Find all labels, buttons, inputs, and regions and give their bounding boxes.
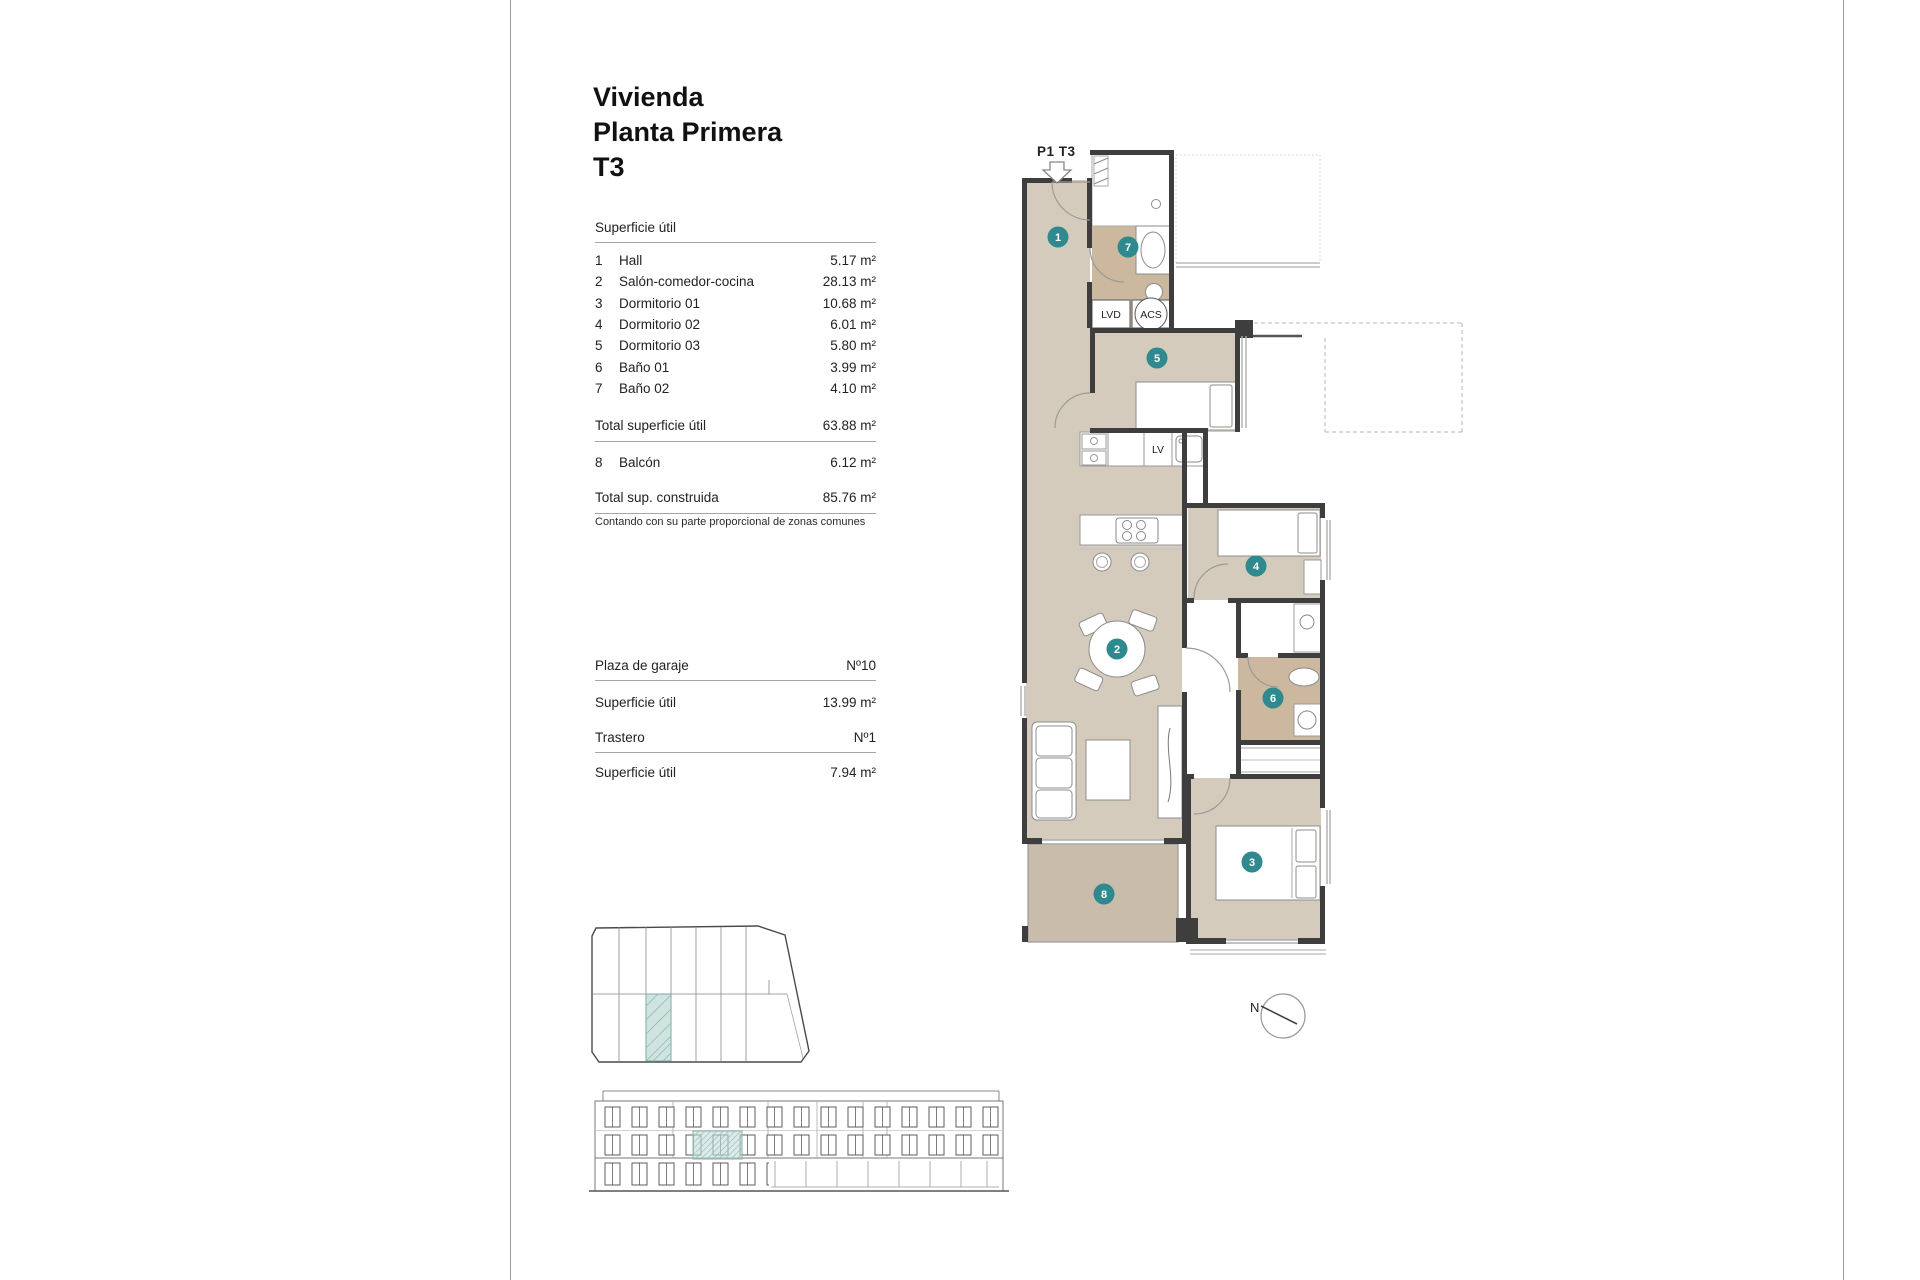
room-badge: 7	[1125, 242, 1131, 254]
table-row: 3Dormitorio 0110.68 m²	[595, 293, 876, 314]
total-util-row: Total superficie útil63.88 m²	[595, 418, 876, 442]
page-title: Vivienda Planta Primera T3	[593, 80, 782, 185]
surface-table-header: Superficie útil	[595, 220, 876, 243]
table-row: 1Hall5.17 m²	[595, 250, 876, 271]
floor-plan: P1 T3 LVD ACS LV 1 2 3 4 5 6 7 8 N	[1010, 130, 1480, 1050]
lvd-label: LVD	[1101, 309, 1121, 321]
storage-header-row: TrasteroNº1	[595, 730, 876, 753]
first-floor-windows	[599, 1131, 999, 1158]
building-elevation	[575, 1075, 1015, 1205]
title-line-2: Planta Primera	[593, 115, 782, 150]
title-line-3: T3	[593, 150, 782, 185]
floor-plan-sheet: { "title": {"line1": "Vivienda", "line2"…	[0, 0, 1920, 1280]
washbasin-icon	[1300, 615, 1314, 629]
keyplan-footprint	[583, 918, 815, 1070]
washbasin-icon	[1298, 711, 1316, 729]
coffee-table-icon	[1086, 740, 1130, 800]
table-row: 7Baño 024.10 m²	[595, 378, 876, 399]
cooktop-icon	[1116, 518, 1158, 543]
room-badge: 4	[1253, 561, 1260, 573]
zones-footnote: Contando con su parte proporcional de zo…	[595, 516, 895, 528]
keyplan-highlighted-unit	[646, 994, 671, 1061]
compass-needle-icon	[1261, 1006, 1297, 1024]
room-badge: 3	[1249, 857, 1255, 869]
table-row: 6Baño 013.99 m²	[595, 356, 876, 377]
elevation-highlighted-unit	[693, 1131, 742, 1159]
room-badge: 1	[1055, 232, 1061, 244]
utility-sink-icon	[1152, 200, 1161, 209]
room-badge: 5	[1154, 353, 1160, 365]
closet-icon	[1304, 560, 1321, 594]
table-row: 2Salón-comedor-cocina28.13 m²	[595, 271, 876, 292]
title-line-1: Vivienda	[593, 80, 782, 115]
room-badge: 6	[1270, 693, 1276, 705]
surface-header-label: Superficie útil	[595, 220, 676, 235]
ground-floor-windows	[599, 1161, 769, 1187]
toilet-icon	[1289, 668, 1319, 686]
garage-header-row: Plaza de garajeNº10	[595, 658, 876, 681]
table-row: 4Dormitorio 026.01 m²	[595, 314, 876, 335]
storage-area-row: Superficie útil7.94 m²	[595, 762, 876, 783]
room-badge: 2	[1114, 644, 1120, 656]
room-badge: 8	[1101, 889, 1107, 901]
unit-label: P1 T3	[1037, 144, 1076, 159]
lv-label: LV	[1152, 444, 1164, 456]
upper-floor-windows	[599, 1103, 999, 1131]
north-compass: N	[1250, 994, 1305, 1038]
total-built-row: Total sup. construida85.76 m²	[595, 490, 876, 514]
sheet-border-right	[1843, 0, 1844, 1280]
table-row: 5Dormitorio 035.80 m²	[595, 335, 876, 356]
compass-circle-icon	[1261, 994, 1305, 1038]
north-label: N	[1250, 1000, 1259, 1015]
surface-table-rows: 1Hall5.17 m² 2Salón-comedor-cocina28.13 …	[595, 250, 876, 399]
garage-area-row: Superficie útil13.99 m²	[595, 692, 876, 713]
sheet-border-left	[510, 0, 511, 1280]
acs-label: ACS	[1140, 309, 1162, 321]
balcony-row: 8Balcón6.12 m²	[595, 452, 876, 473]
